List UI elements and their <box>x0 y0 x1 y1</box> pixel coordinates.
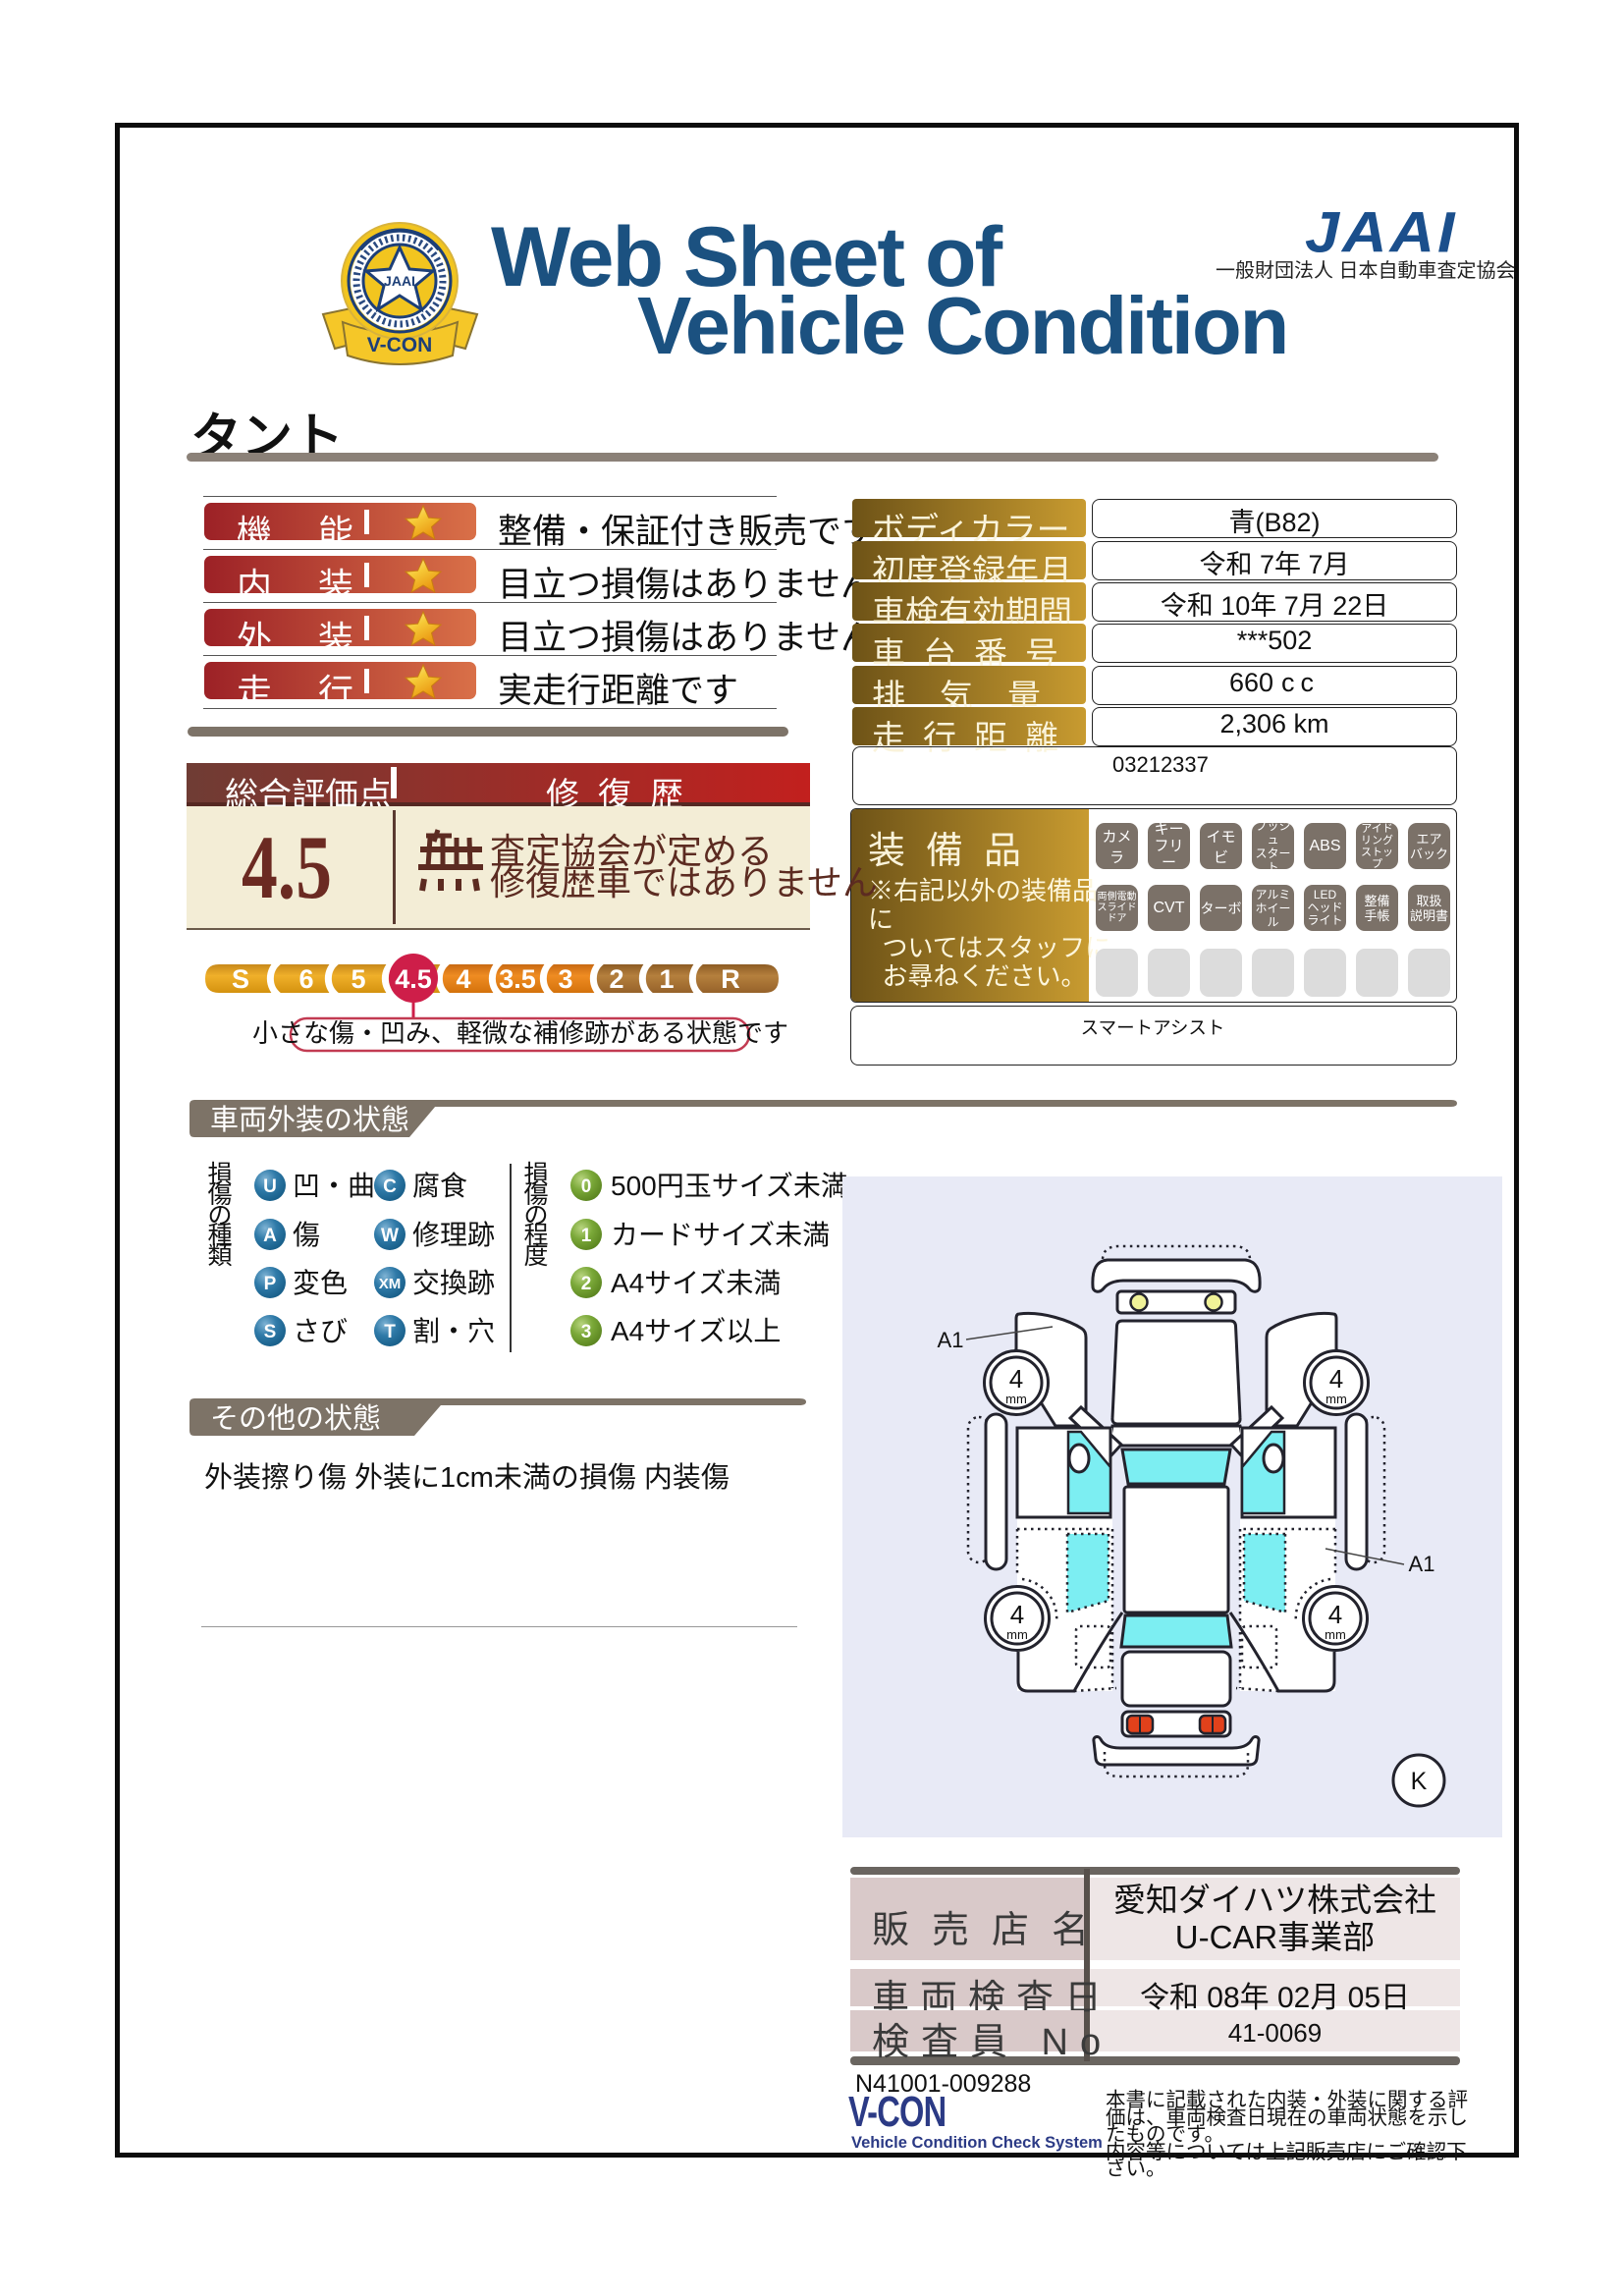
svg-text:4: 4 <box>1010 1600 1024 1629</box>
svg-text:4: 4 <box>1009 1364 1023 1394</box>
svg-text:交換跡: 交換跡 <box>412 1268 495 1298</box>
svg-text:R: R <box>721 964 740 994</box>
svg-text:1: 1 <box>659 964 674 994</box>
svg-text:T: T <box>384 1322 396 1342</box>
svg-text:車両外装の状態: 車両外装の状態 <box>210 1104 409 1136</box>
svg-text:W: W <box>381 1226 399 1246</box>
svg-text:1: 1 <box>581 1226 592 1246</box>
svg-text:mm: mm <box>1325 1392 1347 1406</box>
svg-text:V-CON: V-CON <box>367 334 433 356</box>
svg-text:mm: mm <box>1005 1392 1027 1406</box>
svg-text:A4サイズ以上: A4サイズ以上 <box>611 1316 781 1346</box>
svg-text:小さな傷・凹み、軽微な補修跡がある状態です: 小さな傷・凹み、軽微な補修跡がある状態です <box>252 1018 788 1048</box>
svg-text:修理跡: 修理跡 <box>412 1220 495 1250</box>
svg-text:変色: 変色 <box>293 1268 348 1298</box>
svg-text:2: 2 <box>581 1274 592 1294</box>
svg-text:3.5: 3.5 <box>499 964 536 994</box>
svg-text:4.5: 4.5 <box>395 964 432 994</box>
svg-text:A: A <box>263 1226 277 1246</box>
svg-text:4: 4 <box>1328 1600 1342 1629</box>
svg-text:S: S <box>264 1322 277 1342</box>
svg-text:凹・曲: 凹・曲 <box>293 1171 375 1201</box>
svg-text:U: U <box>263 1176 277 1197</box>
svg-text:その他の状態: その他の状態 <box>210 1402 381 1435</box>
svg-text:傷: 傷 <box>293 1220 320 1250</box>
svg-text:3: 3 <box>581 1322 592 1342</box>
svg-text:A1: A1 <box>938 1328 964 1352</box>
svg-text:mm: mm <box>1325 1627 1346 1642</box>
svg-text:5: 5 <box>351 964 365 994</box>
svg-text:A1: A1 <box>1409 1552 1435 1576</box>
svg-text:2: 2 <box>609 964 623 994</box>
svg-text:XM: XM <box>379 1276 402 1292</box>
svg-text:A4サイズ未満: A4サイズ未満 <box>611 1268 781 1298</box>
svg-text:割・穴: 割・穴 <box>412 1316 495 1346</box>
svg-text:4: 4 <box>1329 1364 1343 1394</box>
svg-text:0: 0 <box>581 1176 592 1197</box>
svg-text:4: 4 <box>456 964 470 994</box>
svg-text:6: 6 <box>298 964 313 994</box>
svg-text:500円玉サイズ未満: 500円玉サイズ未満 <box>611 1171 848 1201</box>
svg-text:C: C <box>383 1176 397 1197</box>
svg-text:3: 3 <box>558 964 572 994</box>
svg-text:さび: さび <box>293 1316 348 1346</box>
svg-text:カードサイズ未満: カードサイズ未満 <box>611 1220 830 1250</box>
svg-text:JAAI: JAAI <box>384 273 415 289</box>
svg-text:S: S <box>232 964 249 994</box>
svg-text:P: P <box>264 1274 277 1294</box>
svg-text:K: K <box>1411 1768 1428 1795</box>
svg-text:腐食: 腐食 <box>412 1171 467 1201</box>
svg-text:mm: mm <box>1006 1627 1028 1642</box>
